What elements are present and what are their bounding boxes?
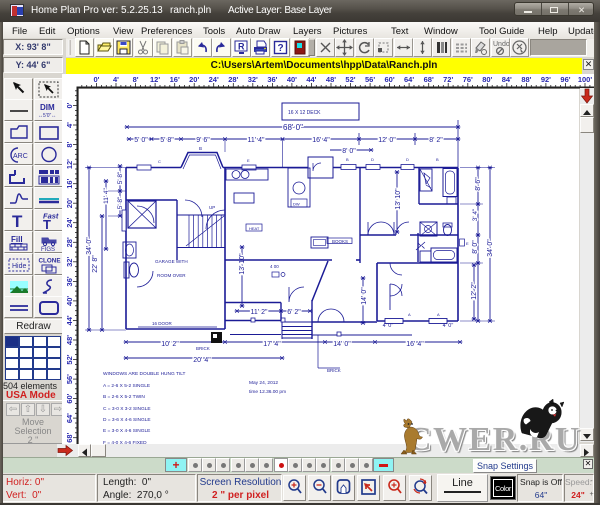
svg-text:BRICK: BRICK [327,368,341,373]
svg-text:WINDOWS ARE DOUBLE HUNG TILT: WINDOWS ARE DOUBLE HUNG TILT [103,371,186,377]
svg-text:D: D [371,157,374,162]
svg-text:D = 3-6 X 4-6 SINGLE: D = 3-6 X 4-6 SINGLE [103,417,151,423]
svg-text:Fill: Fill [11,235,23,244]
svg-text:?: ? [278,43,284,54]
svg-text:UP: UP [209,205,215,210]
svg-text:E: E [466,241,469,246]
svg-text:48': 48' [326,75,336,84]
svg-text:T: T [12,212,23,230]
svg-text:May 24, 2012: May 24, 2012 [249,380,278,386]
svg-text:4': 4' [65,122,74,128]
svg-text:16' 4": 16' 4" [406,341,424,348]
svg-text:16' 4": 16' 4" [312,137,330,144]
svg-text:100': 100' [578,75,593,84]
svg-text:B: B [199,146,202,151]
svg-text:40': 40' [287,75,297,84]
svg-text:34' 0": 34' 0" [487,239,494,257]
svg-text:ROOM OVER: ROOM OVER [157,273,186,278]
svg-text:DIM: DIM [40,103,55,112]
svg-text:E = 3-0 X 4-6 SINGLE: E = 3-0 X 4-6 SINGLE [103,428,150,434]
svg-text:10' 2": 10' 2" [161,341,179,348]
svg-text:14' 0": 14' 0" [333,341,351,348]
svg-text:80': 80' [482,75,492,84]
svg-text:8' 0": 8' 0" [472,240,479,254]
svg-text:48': 48' [65,335,74,345]
svg-text:68': 68' [65,432,74,442]
svg-text:68': 68' [424,75,434,84]
svg-text:C = 3-0 X 3-2 SINGLE: C = 3-0 X 3-2 SINGLE [103,406,151,412]
svg-text:32': 32' [65,257,74,267]
svg-text:24': 24' [209,75,219,84]
svg-text:44': 44' [306,75,316,84]
svg-text:52': 52' [345,75,355,84]
svg-text:5' 0": 5' 0" [134,137,148,144]
svg-text:A: A [408,312,411,317]
svg-text:8' 0": 8' 0" [342,148,356,155]
svg-text:64': 64' [404,75,414,84]
svg-text:60': 60' [65,393,74,403]
svg-text:28': 28' [65,237,74,247]
svg-text:96': 96' [560,75,570,84]
svg-text:T: T [43,217,51,230]
svg-text:56': 56' [65,374,74,384]
svg-text:Undo: Undo [493,41,509,48]
svg-text:24': 24' [65,217,74,227]
svg-text:56': 56' [365,75,375,84]
svg-text:R: R [238,42,245,52]
svg-text:52': 52' [65,354,74,364]
svg-text:17' 4": 17' 4" [263,341,281,348]
svg-text:D: D [406,157,409,162]
svg-text:12' 0": 12' 0" [378,137,396,144]
svg-text:64': 64' [65,413,74,423]
svg-text:6' 2": 6' 2" [287,309,301,316]
svg-text:12': 12' [65,159,74,169]
svg-text:FIGS: FIGS [41,247,55,252]
svg-text:40': 40' [65,296,74,306]
svg-text:BOOKS: BOOKS [332,239,348,244]
svg-text:11' 4": 11' 4" [103,187,110,203]
svg-text:13' 10": 13' 10" [395,188,402,210]
svg-text:22' 8": 22' 8" [92,255,99,273]
svg-text:36': 36' [65,276,74,286]
svg-text:16 X 12 DECK: 16 X 12 DECK [288,110,321,116]
svg-text:B: B [346,157,349,162]
svg-text:HEAT: HEAT [249,226,260,231]
svg-text:12' 2": 12' 2" [471,282,478,300]
svg-text:4 00: 4 00 [270,264,279,269]
svg-text:11' 4": 11' 4" [248,137,265,144]
svg-text:5' 8": 5' 8" [117,196,124,209]
svg-text:76': 76' [463,75,473,84]
svg-text:DW: DW [293,202,300,207]
svg-text:B: B [436,157,439,162]
svg-text:↔5'0"↔: ↔5'0"↔ [38,113,56,119]
svg-text:A: A [437,312,440,317]
svg-text:A = 2-6 X 5-2 SINGLE: A = 2-6 X 5-2 SINGLE [103,383,150,389]
svg-text:84': 84' [502,75,512,84]
svg-text:E: E [247,158,250,163]
svg-text:20': 20' [65,198,74,208]
svg-text:0': 0' [65,102,74,108]
svg-text:36': 36' [267,75,277,84]
svg-text:14' 0": 14' 0" [361,287,368,305]
svg-text:88': 88' [521,75,531,84]
svg-text:3' 4": 3' 4" [472,208,479,221]
svg-text:5' 8": 5' 8" [117,171,124,184]
svg-text:44': 44' [65,315,74,325]
svg-text:9' 6": 9' 6" [196,137,210,144]
svg-text:4': 4' [113,75,119,84]
svg-text:12': 12' [150,75,160,84]
svg-text:8': 8' [133,75,139,84]
svg-text:20' 4": 20' 4" [193,357,211,364]
svg-text:20': 20' [189,75,199,84]
svg-text:8': 8' [65,141,74,147]
svg-text:28': 28' [228,75,238,84]
svg-text:5' 8": 5' 8" [160,137,174,144]
svg-text:92': 92' [541,75,551,84]
svg-text:16': 16' [65,178,74,188]
svg-text:8' 2": 8' 2" [429,137,443,144]
svg-text:ARC: ARC [13,153,28,160]
svg-text:C: C [158,159,161,164]
svg-text:32': 32' [248,75,258,84]
svg-text:B = 2-6 X 5-2 TWIN: B = 2-6 X 5-2 TWIN [103,394,145,400]
svg-text:11' 2": 11' 2" [251,309,268,316]
svg-text:8' 6": 8' 6" [475,177,482,191]
svg-text:72': 72' [443,75,453,84]
svg-text:BRICK: BRICK [196,346,210,351]
svg-text:68' 0": 68' 0" [283,123,303,132]
svg-text:34' 0": 34' 0" [86,237,93,255]
svg-text:0': 0' [94,75,100,84]
svg-text:GARAGE WITH: GARAGE WITH [155,259,188,264]
svg-text:16': 16' [170,75,180,84]
svg-text:time 12.36.00 pm: time 12.36.00 pm [249,389,286,395]
svg-text:16 DOOR: 16 DOOR [152,321,173,326]
svg-text:13' 10": 13' 10" [239,253,246,275]
svg-text:Hide: Hide [12,263,27,270]
svg-text:CLONE: CLONE [38,258,60,265]
svg-text:60': 60' [385,75,395,84]
